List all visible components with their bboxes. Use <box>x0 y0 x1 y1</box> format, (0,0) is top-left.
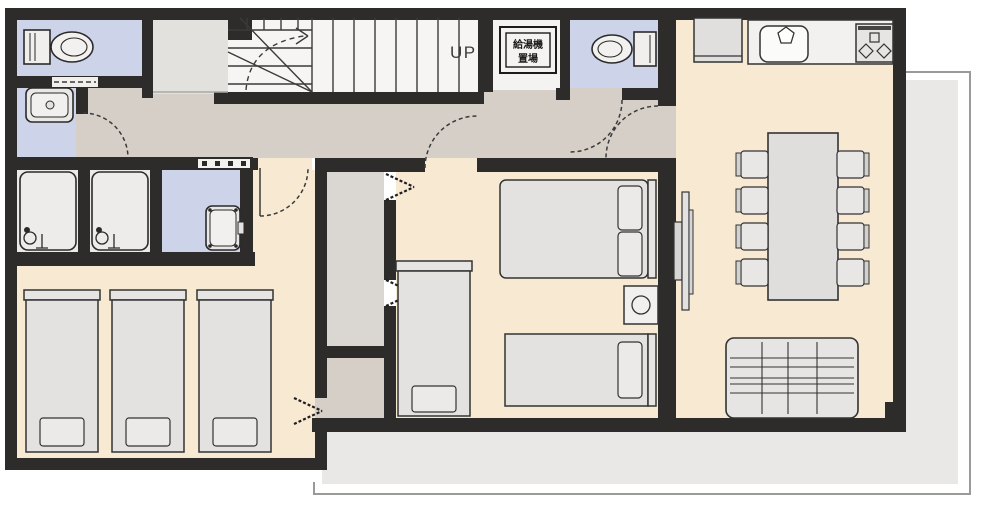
bed-pillow <box>618 232 642 276</box>
bathtub <box>92 172 148 250</box>
vanity-dot <box>209 209 212 212</box>
wall-segment <box>5 252 255 266</box>
sofa <box>726 338 858 418</box>
wall-segment <box>478 8 493 92</box>
wall-segment <box>5 8 906 20</box>
dining-table <box>768 133 838 300</box>
bathroom-1 <box>20 172 76 250</box>
tv-screen <box>682 192 689 310</box>
powder-room-washbasin <box>26 88 73 122</box>
water-heater-unit: 給湯機 置場 <box>500 27 556 73</box>
wall-segment <box>658 158 676 428</box>
chair <box>837 223 864 250</box>
single-bed-vertical <box>396 261 472 416</box>
wall-segment <box>240 160 253 266</box>
wall-segment <box>560 8 570 100</box>
toilet-tank <box>634 32 656 66</box>
wall-segment <box>396 158 425 172</box>
wall-segment <box>78 160 90 256</box>
toilet2-door-opening <box>570 88 622 100</box>
toilet-2 <box>592 32 656 66</box>
chair <box>837 259 864 286</box>
vanity-dot <box>235 209 238 212</box>
bed-headboard <box>197 290 273 300</box>
wall-segment <box>477 158 660 172</box>
toilet-tank <box>24 30 50 64</box>
wall-segment <box>312 418 906 432</box>
tv-panel <box>689 210 693 294</box>
chair <box>741 223 768 250</box>
corner-pillar <box>885 402 903 422</box>
bedroom-triple-door-opening <box>258 158 312 170</box>
wall-segment <box>622 88 676 100</box>
wall-segment <box>556 88 570 100</box>
chair <box>837 187 864 214</box>
bed-pillow <box>126 418 170 446</box>
wall-segment <box>315 158 396 172</box>
bedroom-family-door-opening <box>425 158 477 170</box>
bed-headboard <box>648 180 656 278</box>
wall-segment <box>893 8 906 432</box>
stair-landing-floor <box>153 20 228 94</box>
water-heater-label-line2: 置場 <box>518 52 538 65</box>
wall-segment <box>150 160 162 256</box>
vanity-faucet <box>238 222 244 234</box>
single-bed <box>197 290 273 452</box>
bedroom-triple-beds <box>24 290 273 452</box>
chair-back <box>864 261 869 284</box>
chair <box>837 151 864 178</box>
chair-back <box>864 189 869 212</box>
bed-headboard <box>648 334 656 406</box>
tv-stand <box>674 222 682 280</box>
bathroom-2 <box>92 172 148 250</box>
accordion-notch <box>202 161 207 166</box>
wall-segment <box>315 425 327 470</box>
chair-back <box>736 153 741 176</box>
bed-pillow <box>213 418 257 446</box>
bed-pillow <box>40 418 84 446</box>
chair-back <box>736 261 741 284</box>
bed-pillow <box>412 386 456 412</box>
wall-segment <box>315 158 327 398</box>
stair-base-stub <box>228 10 252 40</box>
ldk-door-opening <box>656 106 676 158</box>
kitchen <box>694 18 893 64</box>
accordion-notch <box>228 161 233 166</box>
vanity-dot <box>209 245 212 248</box>
water-heater-label-line1: 給湯機 <box>513 38 543 51</box>
floor-plan: 給湯機 置場 <box>0 0 1000 521</box>
bed-headboard <box>110 290 186 300</box>
wall-segment <box>214 92 484 104</box>
single-bed-horizontal <box>505 334 656 406</box>
chair <box>741 259 768 286</box>
chair-back <box>736 189 741 212</box>
wall-segment <box>315 346 396 358</box>
chair-back <box>736 225 741 248</box>
floor-plan-drawing: 給湯機 置場 <box>0 0 1000 521</box>
single-bed <box>110 290 186 452</box>
stairs-up-label: UP <box>450 43 477 62</box>
double-bed <box>500 180 656 278</box>
toilet-1 <box>24 30 93 64</box>
bed-pillow <box>618 342 642 398</box>
bath-faucet-dot <box>25 228 30 233</box>
closet-lower-floor <box>327 358 384 418</box>
bath-faucet-dot <box>97 228 102 233</box>
single-bed <box>24 290 100 452</box>
accordion-notch <box>215 161 220 166</box>
chair-back <box>864 153 869 176</box>
wall-segment <box>5 458 322 470</box>
chair <box>741 151 768 178</box>
washroom-vanity <box>206 206 244 250</box>
side-table <box>624 286 658 324</box>
bed-pillow <box>618 186 642 230</box>
vanity-bowl <box>210 210 236 246</box>
wall-segment <box>384 200 396 280</box>
vanity-dot <box>235 245 238 248</box>
chair-back <box>864 225 869 248</box>
side-table-top <box>624 286 658 324</box>
chair <box>741 187 768 214</box>
closet-upper-floor <box>327 170 384 346</box>
bed-headboard <box>24 290 100 300</box>
accordion-notch <box>241 161 246 166</box>
wall-segment <box>384 306 396 418</box>
washbasin-faucet <box>46 101 54 109</box>
bed-headboard <box>396 261 472 271</box>
stove-panel <box>858 26 891 30</box>
bathtub <box>20 172 76 250</box>
